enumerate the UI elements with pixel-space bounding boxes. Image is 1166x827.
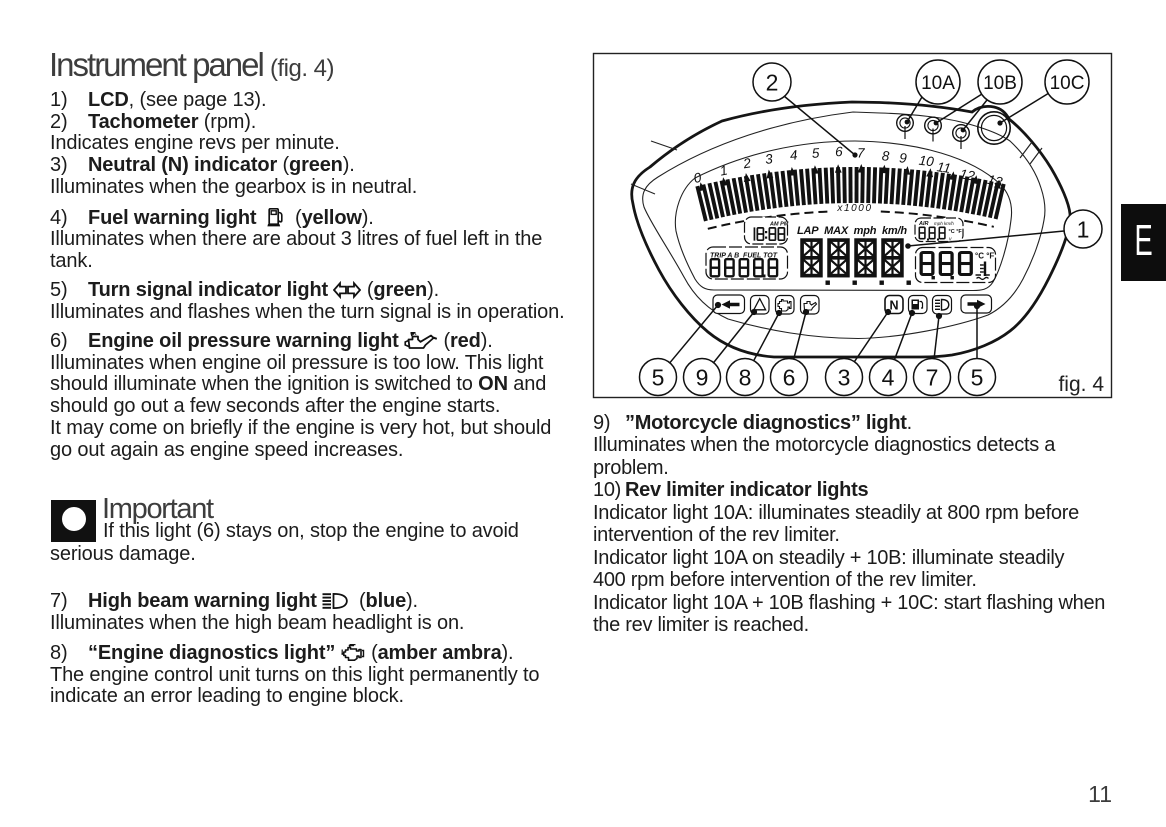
svg-text:LAP MAX mph km/h: LAP MAX mph km/h xyxy=(797,225,907,237)
svg-text:9: 9 xyxy=(696,364,709,390)
svg-text:3: 3 xyxy=(838,364,851,390)
svg-text:7: 7 xyxy=(857,146,865,161)
svg-text:5: 5 xyxy=(811,145,820,160)
svg-text:x1000: x1000 xyxy=(836,203,872,214)
svg-text:fig. 4: fig. 4 xyxy=(1058,373,1104,396)
svg-text:AM PM: AM PM xyxy=(769,222,789,228)
svg-text:1: 1 xyxy=(1077,216,1090,242)
svg-text:°C °F: °C °F xyxy=(949,229,963,235)
svg-text:N: N xyxy=(889,299,898,313)
svg-text:5: 5 xyxy=(971,364,984,390)
svg-text:4: 4 xyxy=(882,364,895,390)
svg-text:6: 6 xyxy=(783,364,796,390)
svg-text:11: 11 xyxy=(936,159,952,176)
svg-text:10B: 10B xyxy=(983,73,1017,94)
svg-text:2: 2 xyxy=(766,69,779,95)
svg-text:°C °F: °C °F xyxy=(975,252,994,261)
svg-text:10: 10 xyxy=(918,153,935,170)
svg-text:6: 6 xyxy=(835,144,843,159)
svg-text:5: 5 xyxy=(652,364,665,390)
svg-text:mph km/h: mph km/h xyxy=(934,221,954,226)
svg-text:7: 7 xyxy=(926,364,939,390)
svg-text:4: 4 xyxy=(789,147,798,163)
svg-text:10C: 10C xyxy=(1050,73,1085,94)
svg-text:8: 8 xyxy=(739,364,752,390)
svg-text:10A: 10A xyxy=(921,73,955,94)
svg-text:AIR: AIR xyxy=(918,221,929,227)
svg-text:8: 8 xyxy=(882,148,891,163)
